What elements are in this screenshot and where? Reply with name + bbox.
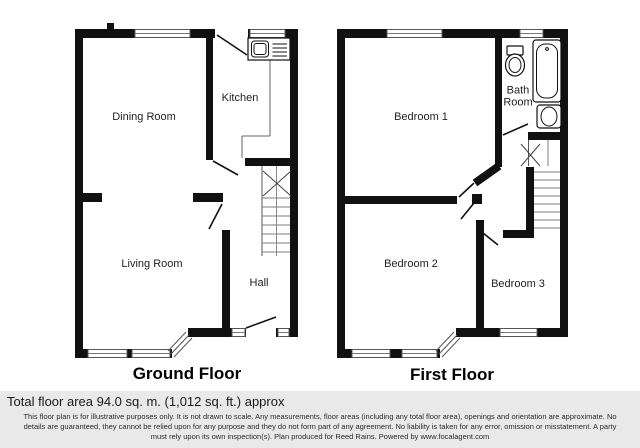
- door-swing-icon: [483, 233, 498, 245]
- window-icon: [352, 350, 390, 358]
- room-label-bedroom-2: Bedroom 2: [384, 258, 438, 270]
- wall: [526, 167, 534, 238]
- door-swing-icon: [213, 161, 238, 175]
- wall: [345, 196, 457, 204]
- door-opening: [246, 327, 276, 338]
- ground-floor-plan: [75, 23, 298, 358]
- window-icon: [88, 350, 127, 358]
- wall: [495, 38, 502, 167]
- room-label-bedroom-1: Bedroom 1: [394, 111, 448, 123]
- chimney-nub: [107, 23, 114, 30]
- wall: [222, 230, 230, 337]
- window-icon: [232, 329, 245, 337]
- window-icon: [132, 350, 170, 358]
- first-floor-title: First Floor: [410, 365, 494, 385]
- wall: [83, 193, 102, 202]
- window-icon: [402, 350, 437, 358]
- room-label-hall: Hall: [250, 277, 269, 289]
- room-label-bath-line2: Room: [503, 97, 532, 109]
- wall: [290, 29, 298, 337]
- toilet-icon: [506, 46, 525, 76]
- wall: [475, 166, 499, 183]
- first-floor-windows: [352, 30, 543, 358]
- door-swing-icon: [503, 124, 528, 135]
- washbasin-icon: [537, 105, 561, 128]
- stairs-direction-arrow: [521, 144, 540, 166]
- wall: [472, 194, 482, 204]
- bathtub-icon: [533, 40, 561, 102]
- footer-strip: Total floor area 94.0 sq. m. (1,012 sq. …: [0, 391, 640, 448]
- disclaimer-line-3: must rely upon its own inspection(s). Pl…: [0, 432, 640, 442]
- floor-plan-drawing: [0, 0, 640, 391]
- window-icon: [250, 30, 285, 38]
- staircase-icon: [262, 166, 291, 256]
- door-swing-icon: [459, 183, 474, 197]
- room-label-dining-room: Dining Room: [112, 111, 176, 123]
- window-icon: [500, 329, 537, 337]
- room-label-bath-room: Bath Room: [503, 86, 532, 109]
- first-floor-doors: [459, 124, 528, 245]
- room-label-bedroom-3: Bedroom 3: [491, 278, 545, 290]
- door-swing-icon: [209, 204, 222, 229]
- ground-floor-walls: [75, 23, 298, 358]
- disclaimer-line-2: details are guaranteed, they cannot be r…: [0, 422, 640, 432]
- disclaimer-line-1: This floor plan is for illustrative purp…: [0, 412, 640, 422]
- kitchen-counter-line: [242, 60, 270, 158]
- window-icon: [278, 329, 289, 337]
- total-floor-area-text: Total floor area 94.0 sq. m. (1,012 sq. …: [7, 394, 284, 409]
- bay-window-icon: [168, 332, 192, 357]
- ground-floor-windows: [88, 30, 289, 358]
- door-swing-icon: [246, 317, 276, 328]
- ground-floor-title: Ground Floor: [133, 364, 242, 384]
- wall: [528, 132, 560, 140]
- disclaimer-text: This floor plan is for illustrative purp…: [0, 412, 640, 442]
- window-icon: [135, 30, 190, 38]
- first-floor-plan: [337, 29, 568, 358]
- wall: [193, 193, 223, 202]
- window-icon: [520, 30, 543, 38]
- wall: [206, 38, 213, 160]
- wall: [245, 158, 298, 166]
- wall: [75, 29, 83, 358]
- door-swing-icon: [461, 203, 474, 219]
- window-icon: [387, 30, 442, 38]
- kitchen-sink-icon: [248, 38, 290, 60]
- bay-window-icon: [436, 332, 460, 357]
- room-label-kitchen: Kitchen: [222, 92, 259, 104]
- room-label-bath-line1: Bath: [503, 86, 532, 98]
- wall: [337, 29, 345, 358]
- room-label-living-room: Living Room: [121, 258, 182, 270]
- wall: [476, 220, 484, 336]
- floor-plan-page: Dining Room Kitchen Living Room Hall Bed…: [0, 0, 640, 448]
